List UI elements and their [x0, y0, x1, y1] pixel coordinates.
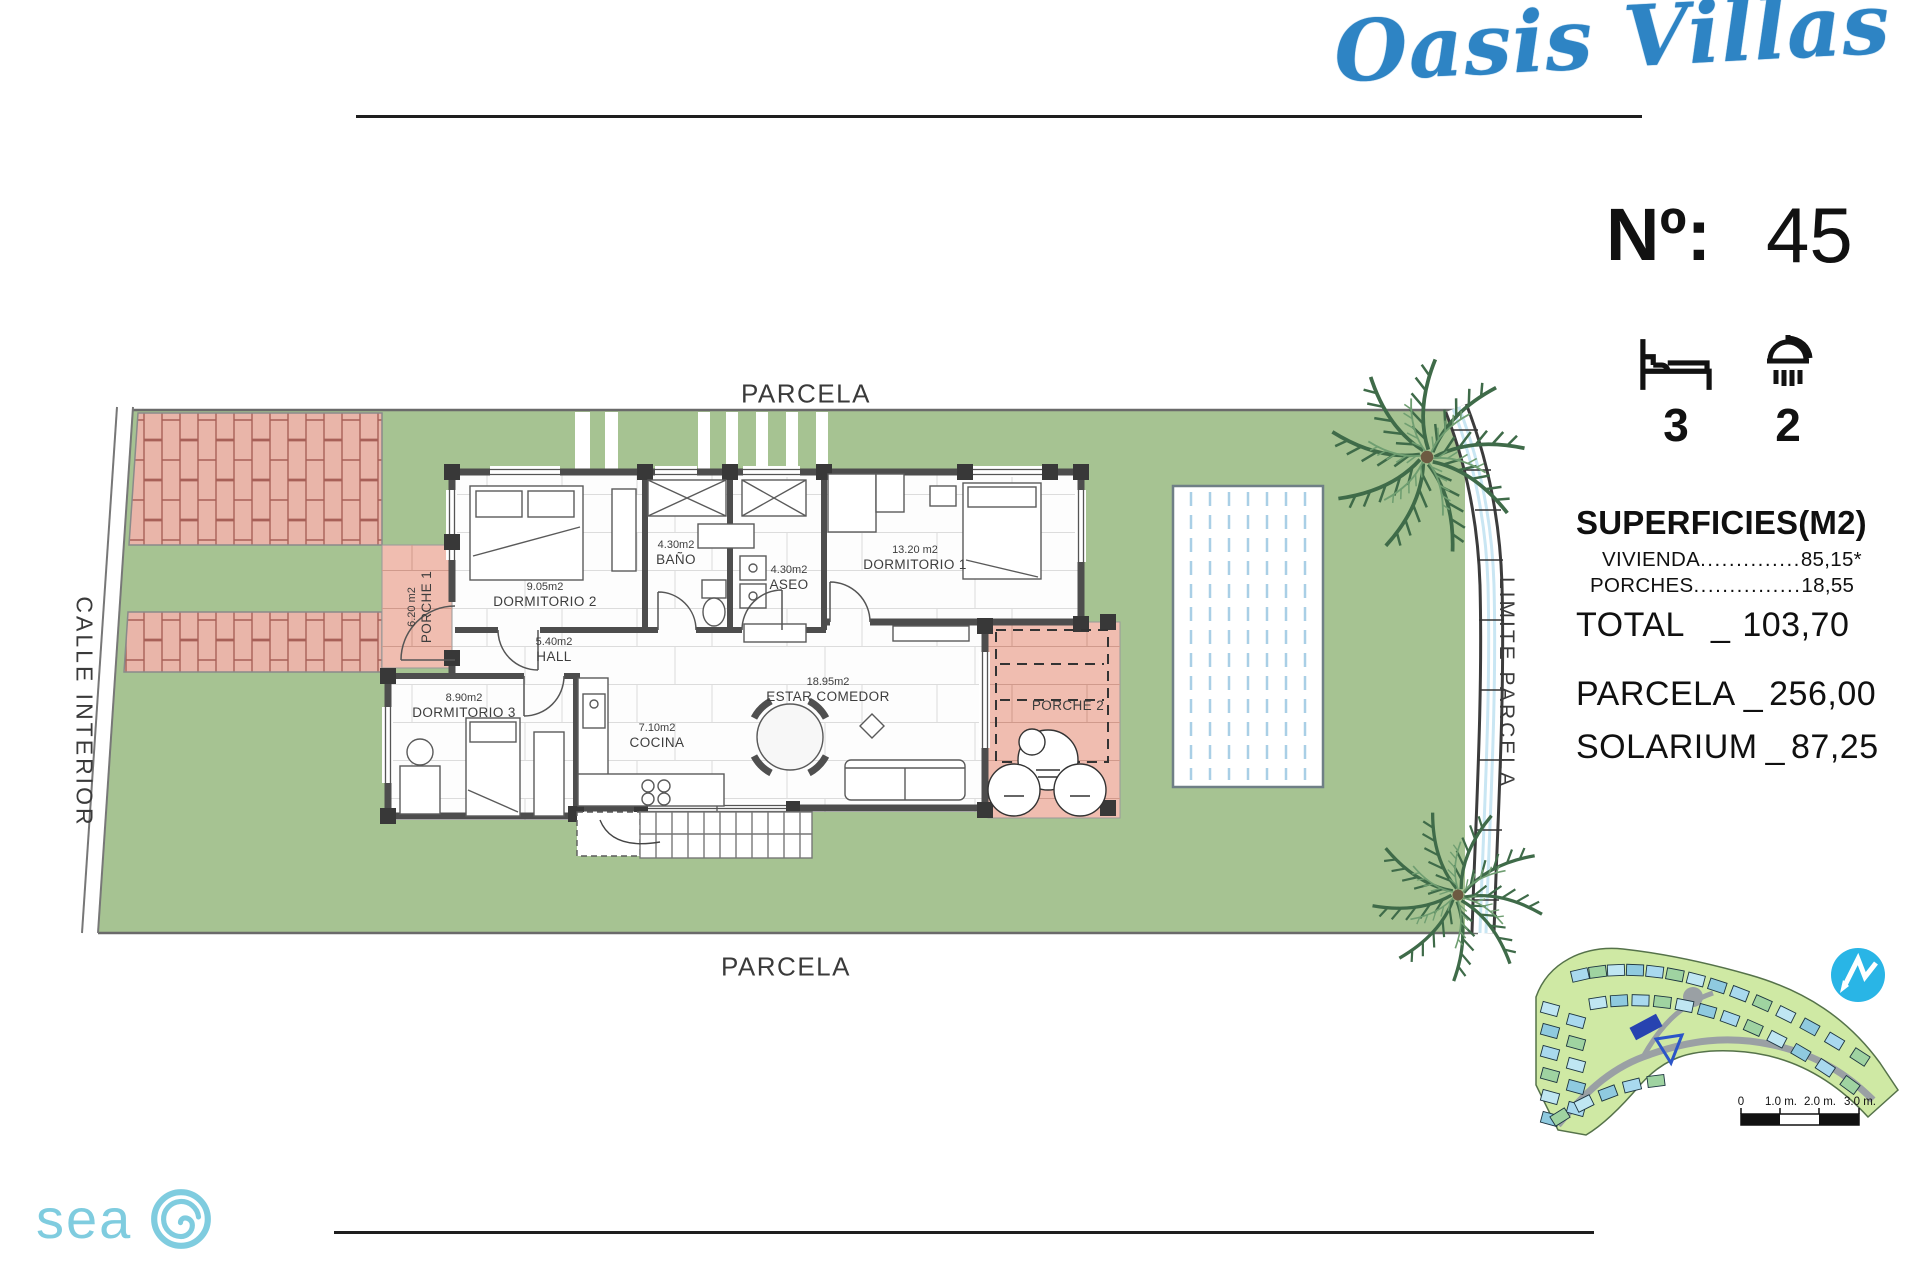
- room-name: DORMITORIO 3: [412, 705, 516, 721]
- garden-paths: [575, 412, 828, 472]
- parcela-label-bottom: PARCELA: [721, 952, 851, 983]
- brochure-page: Oasis Villas Nº: 45 3 2 S: [0, 0, 1920, 1280]
- room-area: 4.30m2: [656, 539, 696, 552]
- wave-icon: [148, 1186, 214, 1252]
- sea-logo-text: sea: [36, 1191, 132, 1247]
- compass-icon: [1831, 948, 1885, 1002]
- surface-row-vivienda: VIVIENDA..............85,15*: [1602, 548, 1920, 572]
- separator: _: [1736, 675, 1769, 713]
- scale-label-0: 0: [1738, 1096, 1744, 1108]
- room-name: HALL: [536, 649, 573, 665]
- surface-row-porches: PORCHES...............18,55: [1590, 574, 1920, 598]
- separator: _: [1758, 728, 1791, 766]
- bedrooms-fixture: 3: [1628, 334, 1724, 448]
- room-area: 9.05m2: [493, 581, 597, 594]
- room-area: 4.30m2: [769, 564, 808, 577]
- leader-dots: ...............: [1693, 574, 1801, 597]
- room-name: DORMITORIO 2: [493, 594, 597, 610]
- room-area: 18.95m2: [766, 676, 889, 689]
- room-area: 5.40m2: [536, 636, 573, 649]
- scale-label-2: 2.0 m.: [1804, 1096, 1836, 1108]
- pool: [1173, 486, 1323, 787]
- room-label-bano: 4.30m2 BAÑO: [656, 539, 696, 567]
- room-label-porche-1: 6.20 m2 PORCHE 1: [406, 571, 434, 643]
- surface-row-parcela: PARCELA_256,00: [1576, 675, 1920, 714]
- room-name: PORCHE 1: [419, 571, 435, 643]
- room-name: DORMITORIO 1: [863, 557, 967, 573]
- sea-logo: sea: [36, 1186, 214, 1252]
- room-label-porche-2: PORCHE 2: [1032, 698, 1104, 714]
- separator: _: [1685, 606, 1742, 644]
- parcela-label-top: PARCELA: [741, 379, 871, 410]
- room-area: 6.20 m2: [406, 571, 419, 643]
- surface-value: 256,00: [1769, 675, 1876, 713]
- bed-icon: [1634, 334, 1718, 394]
- surface-row-total: TOTAL_103,70: [1576, 606, 1920, 645]
- surfaces-panel: SUPERFICIES(M2) VIVIENDA..............85…: [1576, 504, 1920, 767]
- room-label-dormitorio-1: 13.20 m2 DORMITORIO 1: [863, 544, 967, 572]
- room-area: 8.90m2: [412, 692, 516, 705]
- leader-dots: ..............: [1700, 548, 1801, 571]
- shower-icon: [1755, 332, 1821, 394]
- surface-value: 103,70: [1742, 606, 1849, 644]
- surface-label: TOTAL: [1576, 606, 1685, 644]
- scale-label-1: 1.0 m.: [1765, 1096, 1797, 1108]
- room-name: ASEO: [769, 577, 808, 593]
- bedrooms-count: 3: [1663, 402, 1689, 448]
- top-rule: [356, 115, 1642, 118]
- surface-value: 18,55: [1801, 574, 1854, 597]
- surface-value: 87,25: [1791, 728, 1879, 766]
- surfaces-title: SUPERFICIES(M2): [1576, 504, 1920, 542]
- scale-label-3: 3.0 m.: [1844, 1096, 1876, 1108]
- street-label: CALLE INTERIOR: [71, 596, 98, 827]
- surface-row-solarium: SOLARIUM_87,25: [1576, 728, 1920, 767]
- room-label-estar-comedor: 18.95m2 ESTAR COMEDOR: [766, 676, 889, 704]
- room-label-dormitorio-2: 9.05m2 DORMITORIO 2: [493, 581, 597, 609]
- brick-paving: [124, 413, 382, 672]
- room-name: ESTAR COMEDOR: [766, 689, 889, 705]
- room-area: 13.20 m2: [863, 544, 967, 557]
- bottom-rule: [334, 1231, 1594, 1234]
- room-label-aseo: 4.30m2 ASEO: [769, 564, 808, 592]
- surface-label: SOLARIUM: [1576, 728, 1758, 766]
- room-label-dormitorio-3: 8.90m2 DORMITORIO 3: [412, 692, 516, 720]
- bathrooms-count: 2: [1775, 402, 1801, 448]
- scale-bar: [1741, 1108, 1859, 1125]
- villa-number-label: Nº:: [1606, 192, 1711, 277]
- room-label-hall: 5.40m2 HALL: [536, 636, 573, 664]
- room-name: BAÑO: [656, 552, 696, 568]
- boundary-label: LIMITE PARCELA: [1494, 577, 1518, 789]
- room-name: COCINA: [630, 735, 685, 751]
- surface-label: VIVIENDA: [1602, 548, 1700, 571]
- villa-number-value: 45: [1766, 190, 1853, 281]
- surface-value: 85,15*: [1801, 548, 1862, 571]
- surface-label: PARCELA: [1576, 675, 1736, 713]
- room-name: PORCHE 2: [1032, 698, 1104, 714]
- surface-label: PORCHES: [1590, 574, 1693, 597]
- room-area: 7.10m2: [630, 722, 685, 735]
- bathrooms-fixture: 2: [1748, 332, 1828, 448]
- room-label-cocina: 7.10m2 COCINA: [630, 722, 685, 750]
